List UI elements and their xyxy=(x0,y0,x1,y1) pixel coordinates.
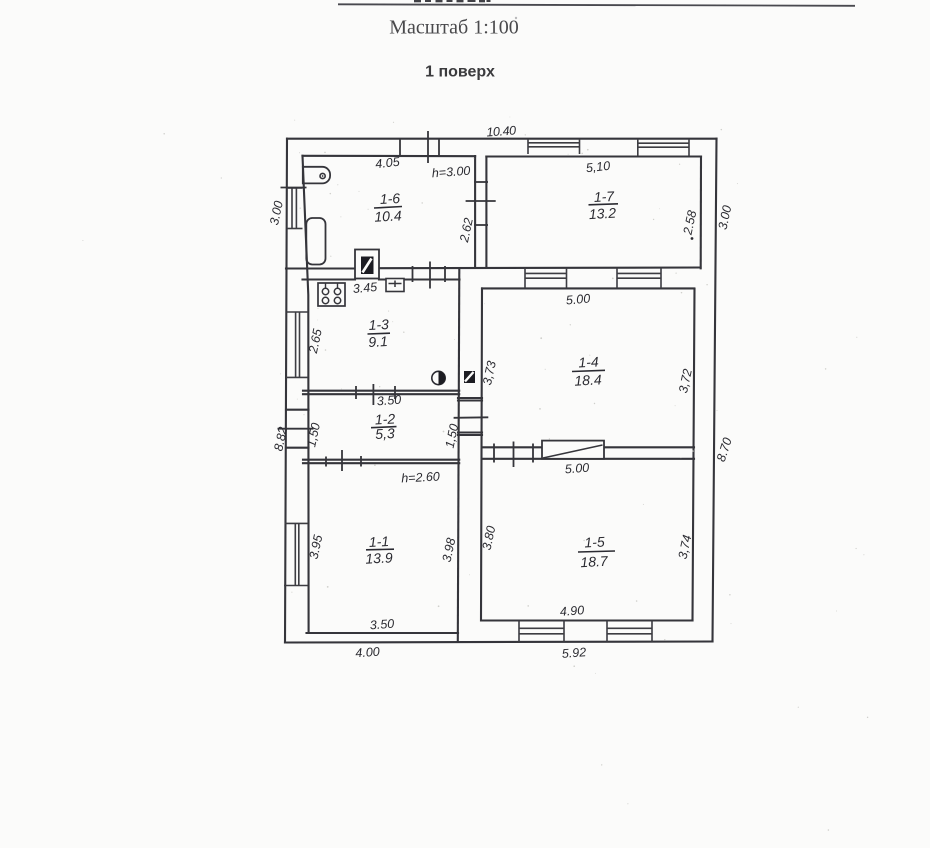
svg-text:18.4: 18.4 xyxy=(574,371,602,388)
svg-text:5.00: 5.00 xyxy=(565,291,591,307)
svg-text:9.1: 9.1 xyxy=(368,333,388,350)
svg-text:10.4: 10.4 xyxy=(374,207,402,224)
svg-text:3.50: 3.50 xyxy=(376,393,401,409)
svg-text:1-1: 1-1 xyxy=(368,533,389,550)
svg-text:13.9: 13.9 xyxy=(365,549,393,566)
svg-text:18.7: 18.7 xyxy=(580,553,609,570)
svg-text:5.00: 5.00 xyxy=(564,461,589,477)
svg-text:1-6: 1-6 xyxy=(379,190,400,207)
svg-text:3.50: 3.50 xyxy=(369,617,394,633)
svg-text:4.00: 4.00 xyxy=(355,645,380,661)
svg-text:5,10: 5,10 xyxy=(585,159,611,175)
svg-text:10.40: 10.40 xyxy=(486,123,517,139)
svg-text:5.92: 5.92 xyxy=(561,645,586,661)
svg-text:1-7: 1-7 xyxy=(593,188,615,205)
svg-text:1-4: 1-4 xyxy=(578,353,599,370)
svg-text:1 поверх: 1 поверх xyxy=(425,64,495,81)
svg-text:4.90: 4.90 xyxy=(559,603,584,619)
svg-text:5,3: 5,3 xyxy=(375,425,395,442)
svg-text:13.2: 13.2 xyxy=(588,205,616,222)
svg-text:3.45: 3.45 xyxy=(352,280,378,296)
svg-text:4.05: 4.05 xyxy=(375,155,401,171)
svg-text:1-5: 1-5 xyxy=(584,533,605,550)
svg-text:h=3.00: h=3.00 xyxy=(431,164,471,181)
svg-text:Масштаб 1:100: Масштаб 1:100 xyxy=(389,17,519,39)
svg-text:1-3: 1-3 xyxy=(368,316,389,333)
svg-text:h=2.60: h=2.60 xyxy=(401,469,440,485)
